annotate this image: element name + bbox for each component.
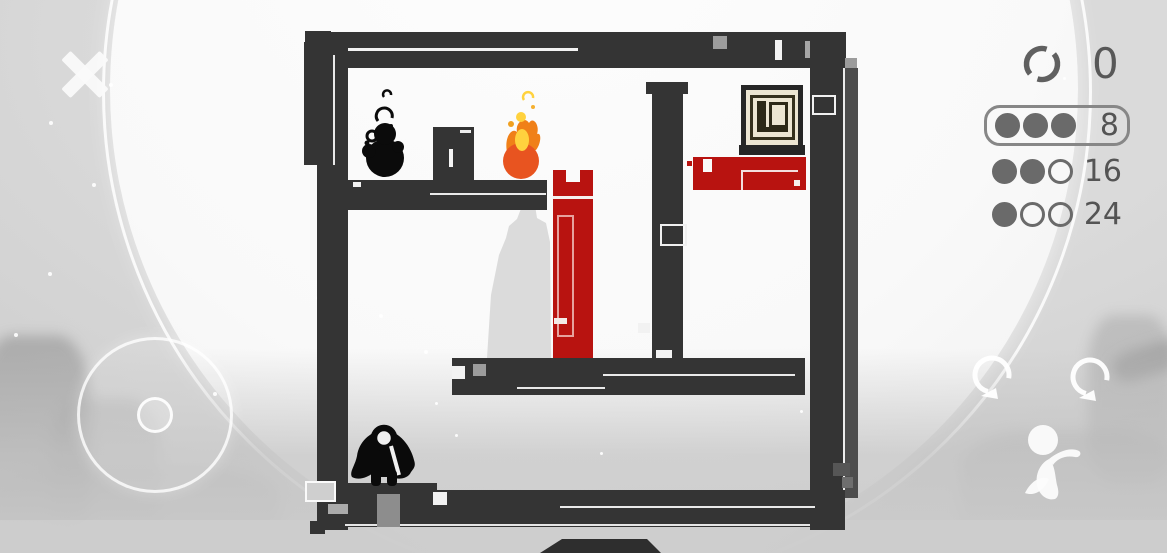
score-moves: 8 xyxy=(1100,108,1119,143)
ink-blob-creature xyxy=(362,90,404,177)
score-table: 8 16 24 xyxy=(984,105,1130,240)
score-moves: 24 xyxy=(1084,197,1122,232)
rating-dot-filled xyxy=(992,202,1017,227)
rating-dot-filled xyxy=(992,159,1017,184)
rating-dot-filled xyxy=(1020,159,1045,184)
score-row: 16 xyxy=(984,154,1130,189)
rating-dots xyxy=(995,113,1076,138)
jump-button[interactable] xyxy=(1005,415,1085,500)
rating-dot-empty xyxy=(1048,202,1073,227)
rating-dots xyxy=(992,202,1073,227)
rotate-arrow-icon xyxy=(1069,356,1110,401)
restart-circular-arrow-icon xyxy=(1020,42,1064,86)
rating-dots xyxy=(992,159,1073,184)
joystick-knob[interactable] xyxy=(137,397,173,433)
restart-count: 0 xyxy=(1092,41,1119,87)
player-character xyxy=(351,428,415,486)
score-row: 24 xyxy=(984,197,1130,232)
rotate-arrow-icon xyxy=(971,354,1012,399)
rotate-left-button[interactable] xyxy=(966,349,1018,401)
rotate-right-button[interactable] xyxy=(1064,351,1116,403)
fire-creature xyxy=(503,92,540,179)
close-button[interactable] xyxy=(56,45,114,103)
rating-dot-empty xyxy=(1048,159,1073,184)
restart-counter: 0 xyxy=(1020,41,1150,87)
joystick[interactable] xyxy=(77,337,233,493)
rating-dot-empty xyxy=(1020,202,1045,227)
score-row: 8 xyxy=(984,105,1130,146)
rating-dot-filled xyxy=(1051,113,1076,138)
score-moves: 16 xyxy=(1084,154,1122,189)
game-screen: 0 8 16 24 xyxy=(0,0,1167,553)
rating-dot-filled xyxy=(995,113,1020,138)
jumping-figure-icon xyxy=(1025,425,1080,500)
rating-dot-filled xyxy=(1023,113,1048,138)
pedestal xyxy=(540,539,661,553)
